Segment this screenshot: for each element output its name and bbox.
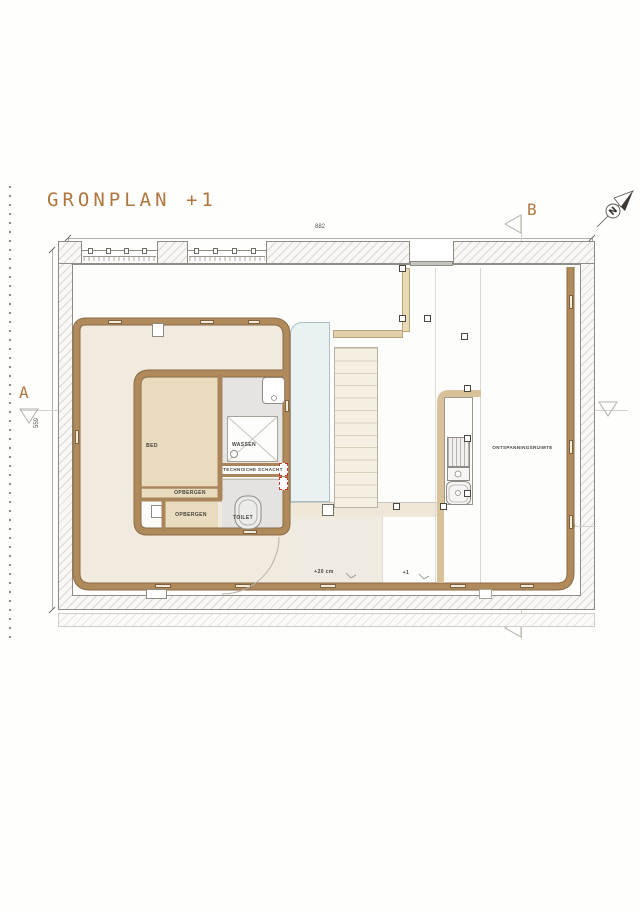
room-label-toilet: TOILET	[225, 515, 261, 521]
level-annotation-floor: +20 cm	[304, 569, 344, 575]
column-marker	[464, 385, 471, 392]
column-marker	[399, 315, 406, 322]
room-label-technische-schacht: TECHNISCHE SCHACHT	[223, 467, 283, 472]
room-label-bed: BED	[136, 443, 168, 449]
level-annotation-stair: +1	[394, 570, 418, 576]
room-label-ontspanningsruimte: ONTSPANNINGSRUIMTE	[480, 445, 565, 450]
wall-notch	[146, 589, 167, 599]
column-marker	[464, 435, 471, 442]
level-mark-icon	[345, 571, 357, 579]
wall-notch	[479, 589, 492, 599]
column-marker	[440, 503, 447, 510]
column-marker	[464, 490, 471, 497]
floor-plan-sheet: GRONPLAN +1 882 559 B A N	[0, 0, 640, 910]
room-label-wassen: WASSEN	[226, 442, 262, 448]
column-marker	[399, 265, 406, 272]
room-label-opbergen-lower: OPBERGEN	[163, 512, 219, 518]
column-marker	[461, 333, 468, 340]
kitchen-sink-details	[444, 460, 474, 510]
column-marker	[424, 315, 431, 322]
washbasin-faucet	[262, 377, 285, 404]
room-label-opbergen-upper: OPBERGEN	[162, 490, 218, 496]
level-mark-icon	[418, 572, 430, 580]
fixtures-overlay	[0, 0, 640, 910]
column-marker	[393, 503, 400, 510]
